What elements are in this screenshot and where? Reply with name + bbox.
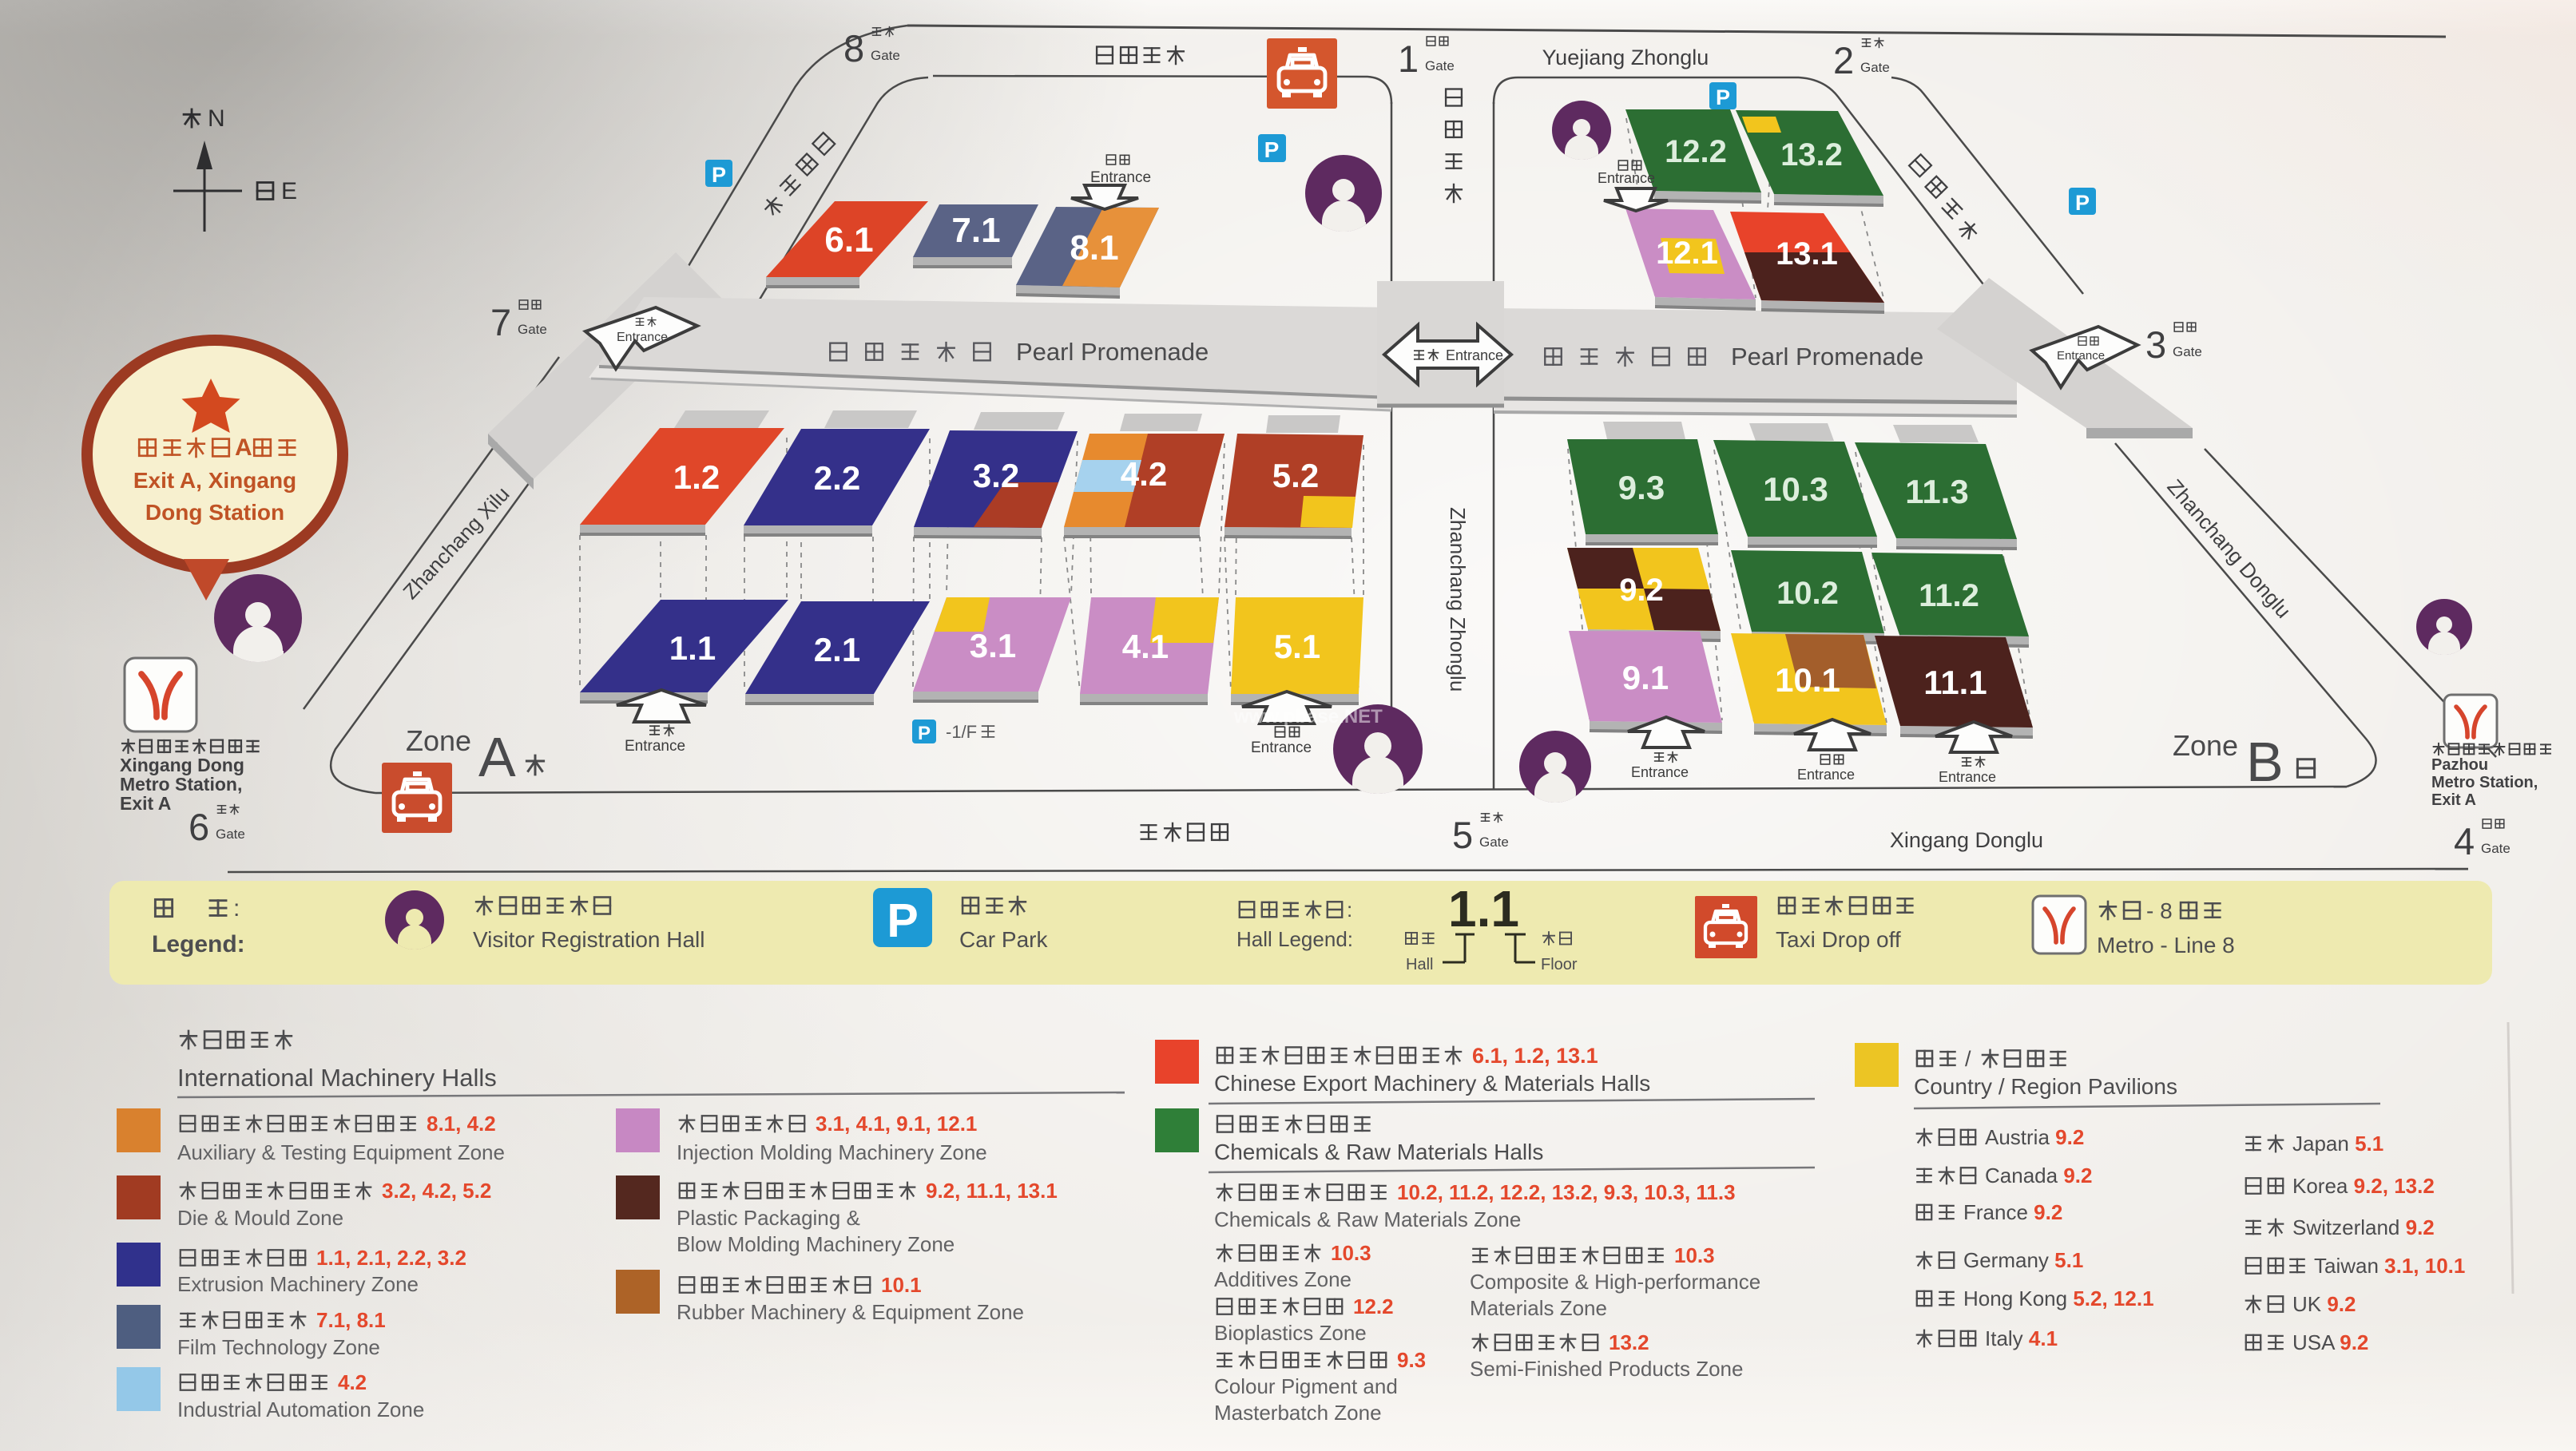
- svg-text:1.1: 1.1: [669, 629, 716, 667]
- svg-text:/: /: [1965, 1047, 1971, 1071]
- svg-text:Exit A: Exit A: [2431, 791, 2476, 809]
- svg-text:Country / Region Pavilions: Country / Region Pavilions: [1914, 1074, 2177, 1099]
- svg-text:Injection Molding Machinery Zo: Injection Molding Machinery Zone: [677, 1140, 987, 1164]
- svg-text:Entrance: Entrance: [1797, 767, 1855, 783]
- svg-text:Car Park: Car Park: [959, 927, 1048, 952]
- svg-text:Gate: Gate: [2173, 344, 2202, 359]
- svg-text:8: 8: [843, 27, 864, 69]
- svg-text:P: P: [1716, 85, 1730, 109]
- svg-text:Entrance: Entrance: [1090, 169, 1151, 186]
- svg-text:Gate: Gate: [1425, 58, 1455, 73]
- svg-text:5: 5: [1452, 814, 1473, 856]
- svg-text:Zone: Zone: [2173, 729, 2238, 762]
- svg-text:7.1, 8.1: 7.1, 8.1: [316, 1308, 386, 1332]
- svg-text:P: P: [712, 163, 726, 187]
- svg-text:10.2: 10.2: [1776, 576, 1839, 611]
- svg-text:Blow Molding Machinery Zone: Blow Molding Machinery Zone: [677, 1232, 955, 1256]
- svg-text:Film Technology Zone: Film Technology Zone: [177, 1335, 380, 1359]
- svg-text:10.2, 11.2, 12.2, 13.2, 9.3, 1: 10.2, 11.2, 12.2, 13.2, 9.3, 10.3, 11.3: [1397, 1180, 1736, 1204]
- svg-text:6: 6: [189, 806, 209, 848]
- svg-text:Gate: Gate: [1479, 835, 1509, 850]
- svg-text:12.2: 12.2: [1665, 134, 1727, 169]
- svg-text:-1/F: -1/F: [946, 722, 977, 742]
- svg-text:Xingang Donglu: Xingang Donglu: [1890, 828, 2043, 852]
- svg-text:10.3: 10.3: [1763, 470, 1828, 508]
- svg-text:Entrance: Entrance: [1446, 347, 1503, 363]
- svg-text:9.3: 9.3: [1397, 1348, 1426, 1372]
- svg-text:Pearl Promenade: Pearl Promenade: [1016, 338, 1209, 366]
- svg-text:1.1: 1.1: [1448, 880, 1519, 938]
- svg-text:Germany 5.1: Germany 5.1: [1963, 1248, 2083, 1272]
- svg-text:1.1, 2.1, 2.2, 3.2: 1.1, 2.1, 2.2, 3.2: [316, 1246, 466, 1270]
- svg-text:A: A: [235, 434, 252, 461]
- svg-text:Entrance: Entrance: [1631, 764, 1689, 780]
- svg-text:5.1: 5.1: [1274, 628, 1320, 665]
- svg-text:4.1: 4.1: [1122, 628, 1169, 665]
- svg-text:Exit A: Exit A: [120, 793, 171, 814]
- svg-text:7: 7: [490, 301, 511, 343]
- svg-text:Gate: Gate: [1860, 60, 1890, 75]
- svg-text:Gate: Gate: [2481, 841, 2511, 856]
- svg-text:P: P: [2075, 191, 2090, 215]
- svg-text:Visitor Registration Hall: Visitor Registration Hall: [473, 927, 705, 952]
- svg-text:Yuejiang Zhonglu: Yuejiang Zhonglu: [1542, 46, 1709, 69]
- svg-text:Italy 4.1: Italy 4.1: [1985, 1326, 2058, 1350]
- svg-text:9.3: 9.3: [1618, 469, 1665, 506]
- svg-text:Composite & High-performance: Composite & High-performance: [1470, 1270, 1760, 1294]
- svg-text:10.1: 10.1: [1775, 661, 1840, 699]
- svg-text:Exit A, Xingang: Exit A, Xingang: [133, 468, 296, 493]
- svg-text:Rubber Machinery & Equipment Z: Rubber Machinery & Equipment Zone: [677, 1300, 1024, 1324]
- svg-text:12.1: 12.1: [1656, 236, 1718, 271]
- svg-text:2: 2: [1833, 39, 1854, 81]
- svg-text:Chemicals & Raw Materials Zone: Chemicals & Raw Materials Zone: [1214, 1207, 1521, 1231]
- svg-text:UK 9.2: UK 9.2: [2292, 1292, 2356, 1316]
- svg-text:11.1: 11.1: [1923, 664, 1987, 701]
- svg-text:E: E: [281, 178, 297, 204]
- svg-text:Gate: Gate: [871, 48, 900, 63]
- svg-text:Pearl Promenade: Pearl Promenade: [1731, 343, 1923, 371]
- svg-text:5.2: 5.2: [1272, 457, 1319, 494]
- svg-text:Dong Station: Dong Station: [145, 500, 284, 525]
- svg-text:N: N: [208, 105, 225, 132]
- svg-text:Entrance: Entrance: [617, 331, 668, 344]
- svg-text:A: A: [478, 726, 516, 788]
- svg-text::: :: [1347, 898, 1352, 922]
- svg-text:Canada 9.2: Canada 9.2: [1985, 1164, 2092, 1187]
- svg-text:Plastic Packaging &: Plastic Packaging &: [677, 1206, 860, 1230]
- svg-text:www.pbase.NET: www.pbase.NET: [1233, 706, 1383, 727]
- svg-text:Hall: Hall: [1406, 956, 1433, 973]
- svg-text:7.1: 7.1: [951, 211, 1000, 250]
- svg-text:Entrance: Entrance: [1598, 170, 1655, 186]
- svg-text:1: 1: [1398, 38, 1419, 80]
- svg-text:12.2: 12.2: [1353, 1294, 1394, 1318]
- svg-text:USA 9.2: USA 9.2: [2292, 1330, 2368, 1354]
- svg-text:Bioplastics Zone: Bioplastics Zone: [1214, 1321, 1367, 1345]
- svg-text:9.2, 11.1, 13.1: 9.2, 11.1, 13.1: [926, 1179, 1058, 1203]
- svg-text:4: 4: [2454, 820, 2475, 862]
- svg-text:- 8: - 8: [2146, 898, 2173, 923]
- svg-text:Masterbatch Zone: Masterbatch Zone: [1214, 1401, 1382, 1425]
- svg-text:Floor: Floor: [1541, 956, 1578, 973]
- svg-text:Semi-Finished Products Zone: Semi-Finished Products Zone: [1470, 1357, 1743, 1381]
- svg-text:Auxiliary & Testing Equipment: Auxiliary & Testing Equipment Zone: [177, 1140, 505, 1164]
- svg-text:Zhanchang Zhonglu: Zhanchang Zhonglu: [1446, 507, 1470, 692]
- svg-text:Entrance: Entrance: [1939, 769, 1996, 785]
- svg-text:2.2: 2.2: [814, 459, 860, 497]
- svg-text:Japan 5.1: Japan 5.1: [2292, 1132, 2383, 1156]
- svg-text:Switzerland 9.2: Switzerland 9.2: [2292, 1215, 2435, 1239]
- svg-text:4.2: 4.2: [338, 1370, 367, 1394]
- svg-text:3: 3: [2145, 323, 2166, 366]
- svg-text:Metro Station,: Metro Station,: [2431, 774, 2538, 791]
- svg-text:3.2, 4.2, 5.2: 3.2, 4.2, 5.2: [382, 1179, 491, 1203]
- svg-text:6.1, 1.2, 13.1: 6.1, 1.2, 13.1: [1472, 1044, 1598, 1068]
- svg-text:Chemicals & Raw Materials Hall: Chemicals & Raw Materials Halls: [1214, 1140, 1543, 1164]
- svg-text:8.1: 8.1: [1070, 228, 1118, 268]
- svg-text:10.3: 10.3: [1674, 1243, 1715, 1267]
- svg-text:Metro - Line 8: Metro - Line 8: [2097, 933, 2235, 957]
- svg-text:Entrance: Entrance: [1251, 739, 1312, 756]
- svg-text:3.2: 3.2: [973, 457, 1019, 494]
- svg-text:Taxi Drop off: Taxi Drop off: [1776, 927, 1901, 952]
- svg-text:Hong Kong 5.2, 12.1: Hong Kong 5.2, 12.1: [1963, 1286, 2154, 1310]
- svg-text:Legend:: Legend:: [152, 931, 245, 957]
- svg-text:P: P: [918, 723, 931, 744]
- svg-text:Zhanchang Donglu: Zhanchang Donglu: [2162, 474, 2296, 623]
- svg-text:Gate: Gate: [518, 322, 547, 337]
- svg-text:France 9.2: France 9.2: [1963, 1200, 2062, 1224]
- svg-text:Additives Zone: Additives Zone: [1214, 1267, 1352, 1291]
- svg-text:11.3: 11.3: [1905, 473, 1968, 510]
- svg-text:Pazhou: Pazhou: [2431, 756, 2488, 774]
- svg-text:Industrial Automation Zone: Industrial Automation Zone: [177, 1397, 424, 1421]
- svg-text:Metro Station,: Metro Station,: [120, 774, 242, 795]
- svg-text:13.1: 13.1: [1776, 236, 1838, 272]
- svg-text:10.3: 10.3: [1331, 1241, 1371, 1265]
- svg-text:13.2: 13.2: [1780, 137, 1843, 172]
- svg-text:Extrusion Machinery Zone: Extrusion Machinery Zone: [177, 1272, 419, 1296]
- svg-text:8.1, 4.2: 8.1, 4.2: [427, 1112, 496, 1136]
- svg-text:Colour Pigment and: Colour Pigment and: [1214, 1374, 1398, 1398]
- svg-text:P: P: [1264, 137, 1280, 162]
- svg-text:International Machinery Halls: International Machinery Halls: [177, 1064, 497, 1092]
- svg-text:10.1: 10.1: [881, 1273, 922, 1297]
- svg-text:Entrance: Entrance: [625, 738, 685, 755]
- svg-text:Chinese Export Machinery & Mat: Chinese Export Machinery & Materials Hal…: [1214, 1071, 1650, 1096]
- svg-text:Die & Mould Zone: Die & Mould Zone: [177, 1206, 343, 1230]
- svg-text:Materials Zone: Materials Zone: [1470, 1296, 1607, 1320]
- svg-text:9.2: 9.2: [1619, 573, 1664, 608]
- svg-text:3.1, 4.1, 9.1, 12.1: 3.1, 4.1, 9.1, 12.1: [816, 1112, 977, 1136]
- svg-text:Austria 9.2: Austria 9.2: [1985, 1125, 2084, 1149]
- svg-text::: :: [233, 895, 240, 922]
- svg-text:Xingang Dong: Xingang Dong: [120, 755, 244, 775]
- svg-text:Entrance: Entrance: [2057, 349, 2105, 363]
- svg-text:1.2: 1.2: [673, 458, 720, 496]
- svg-text:3.1: 3.1: [970, 627, 1016, 664]
- svg-text:4.2: 4.2: [1121, 455, 1167, 493]
- svg-text:2.1: 2.1: [814, 631, 860, 668]
- svg-text:13.2: 13.2: [1609, 1330, 1649, 1354]
- svg-text:B: B: [2246, 731, 2284, 793]
- svg-text:Korea 9.2, 13.2: Korea 9.2, 13.2: [2292, 1174, 2435, 1198]
- svg-text:11.2: 11.2: [1919, 578, 1979, 613]
- svg-text:P: P: [887, 894, 918, 947]
- svg-text:6.1: 6.1: [824, 220, 873, 260]
- svg-text:Hall Legend:: Hall Legend:: [1236, 927, 1353, 951]
- svg-text:Gate: Gate: [216, 827, 245, 842]
- svg-text:Taiwan 3.1, 10.1: Taiwan 3.1, 10.1: [2314, 1254, 2465, 1278]
- svg-text:Zone: Zone: [406, 724, 471, 757]
- svg-text:9.1: 9.1: [1622, 659, 1669, 696]
